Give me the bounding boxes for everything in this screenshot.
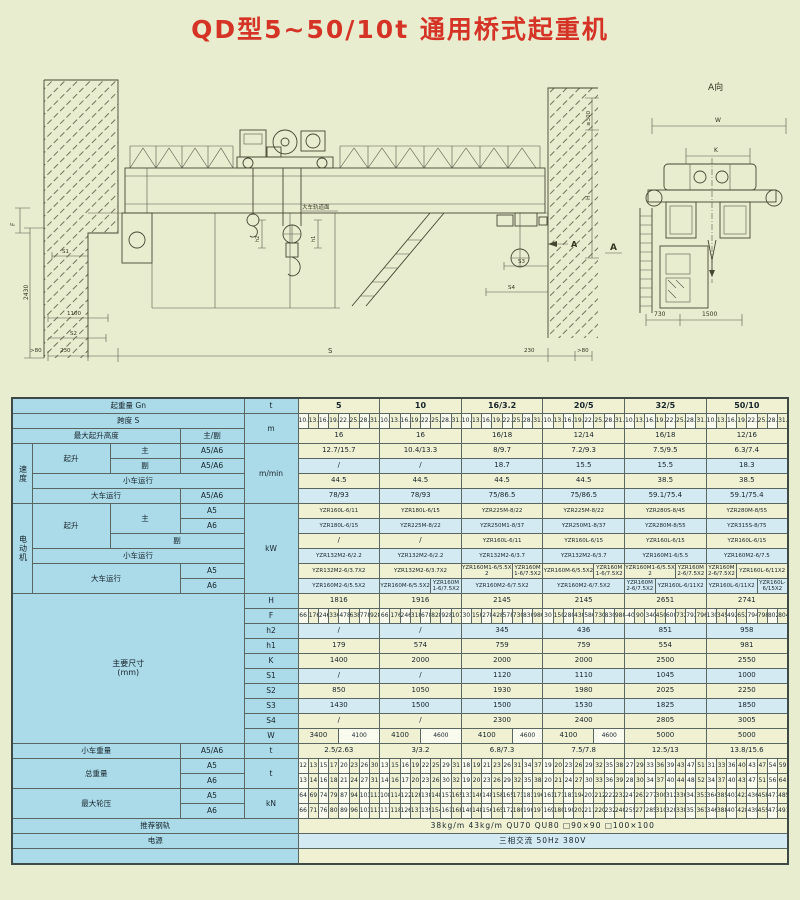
table-cell: /: [298, 624, 380, 639]
side-girders: [646, 190, 782, 238]
table-cell: 220: [594, 804, 604, 819]
table-cell: 10.5: [380, 414, 390, 429]
table-cell: 638: [349, 609, 359, 624]
table-cell: 5000: [706, 729, 788, 744]
dim-s3: S3: [518, 259, 525, 265]
table-cell: 928: [441, 609, 451, 624]
table-cell: 32: [594, 759, 604, 774]
table-cell: 128: [410, 789, 420, 804]
table-cell: 492: [727, 609, 737, 624]
table-cell: /: [380, 459, 462, 474]
table-cell: 180: [553, 804, 563, 819]
table-cell: 43: [737, 774, 747, 789]
dim-h: H: [585, 195, 592, 200]
table-cell: 22.5: [747, 414, 757, 429]
table-cell: H: [244, 594, 298, 609]
table-cell: YZR132M2-6/2.2: [298, 549, 380, 564]
table-cell: 16/18: [461, 429, 543, 444]
table-cell: 25.5: [431, 414, 441, 429]
table-cell: 31.5: [451, 414, 461, 429]
table-cell: 158: [492, 789, 502, 804]
table-cell: 2025: [625, 684, 707, 699]
table-cell: 31.5: [533, 414, 543, 429]
table-cell: 大车运行: [32, 564, 180, 594]
section-arrow-label: A: [571, 240, 578, 249]
table-cell: 211: [584, 804, 594, 819]
table-cell: 1400: [298, 654, 380, 669]
table-cell: 19.5: [574, 414, 584, 429]
table-cell: 小车运行: [32, 549, 244, 564]
table-cell: 12.5/13: [625, 744, 707, 759]
table-cell: 958: [706, 624, 788, 639]
table-cell: 47: [747, 774, 757, 789]
table-cell: 1980: [543, 684, 625, 699]
table-cell: 22: [420, 759, 430, 774]
table-cell: 485: [778, 789, 788, 804]
table-cell: 312: [665, 789, 675, 804]
table-cell: A6: [180, 519, 244, 534]
table-cell: 830: [604, 609, 614, 624]
table-cell: 19: [410, 759, 420, 774]
table-cell: 36: [727, 759, 737, 774]
table-cell: A6: [180, 579, 244, 594]
table-cell: 168: [451, 804, 461, 819]
spec-table: 起重量 Gnt51016/3.220/532/550/10跨度 Sm10.513…: [11, 397, 789, 865]
table-cell: 跨度 S: [12, 414, 244, 429]
section-label: A: [610, 243, 617, 253]
table-cell: 190: [533, 789, 543, 804]
table-cell: 154: [431, 804, 441, 819]
main-hook: [283, 168, 301, 276]
table-cell: 56: [767, 774, 777, 789]
table-cell: 732: [676, 609, 686, 624]
table-cell: 三相交流 50Hz 380V: [298, 834, 788, 849]
table-cell: 19.5: [655, 414, 665, 429]
table-cell: 310: [655, 804, 665, 819]
table-cell: 176: [308, 609, 318, 624]
table-cell: YZR160M-6/5.5X2: [543, 564, 594, 579]
table-cell: 1930: [461, 684, 543, 699]
table-cell: 1000: [706, 669, 788, 684]
table-cell: 2145: [461, 594, 543, 609]
table-cell: 16.5: [727, 414, 737, 429]
table-cell: 20: [543, 774, 553, 789]
table-cell: YZR132M2-6/3.7X2: [380, 564, 462, 579]
table-cell: YZR160M2-6/7.5X2: [706, 564, 737, 579]
side-view-title: A向: [708, 81, 723, 93]
table-cell: A5/A6: [180, 489, 244, 504]
table-cell: 75/86.5: [461, 489, 543, 504]
table-cell: 80: [329, 804, 339, 819]
table-cell: YZR160L-6/11X2: [737, 564, 788, 579]
table-cell: 407: [727, 804, 737, 819]
table-cell: 15.5: [543, 459, 625, 474]
table-cell: 345: [461, 624, 543, 639]
table-cell: 15: [390, 759, 400, 774]
table-cell: 推荐钢轨: [12, 819, 298, 834]
table-cell: 35: [522, 774, 532, 789]
dim-230-left: 230: [60, 348, 71, 354]
table-cell: 71: [308, 804, 318, 819]
table-cell: 4100: [461, 729, 512, 744]
table-cell: 4600: [512, 729, 543, 744]
table-cell: 速度: [12, 444, 32, 504]
table-cell: 13.8/15.6: [706, 744, 788, 759]
table-cell: 94: [349, 789, 359, 804]
table-cell: 796: [696, 609, 706, 624]
side-dimensions: W K 730 1500 A: [605, 117, 786, 326]
table-cell: /: [380, 714, 462, 729]
table-cell: 39: [665, 759, 675, 774]
table-cell: 19.5: [737, 414, 747, 429]
table-cell: 300: [655, 789, 665, 804]
table-cell: YZR160L-6/11X2: [655, 579, 706, 594]
table-cell: 13.5: [471, 414, 481, 429]
table-cell: 103: [359, 789, 369, 804]
table-cell: YZR160L-6/11X2: [706, 579, 757, 594]
table-cell: F: [244, 609, 298, 624]
dim-h2: h2: [255, 236, 261, 242]
table-cell: 28.5: [522, 414, 532, 429]
table-cell: 114: [390, 789, 400, 804]
table-cell: 19.5: [329, 414, 339, 429]
dim-w: W: [715, 117, 721, 124]
table-cell: YZR160M2-6/7.5X2: [625, 579, 656, 594]
table-cell: YZR160M2-6/7.5: [706, 549, 788, 564]
table-cell: 74: [318, 789, 328, 804]
table-cell: kN: [244, 789, 298, 819]
table-cell: 29: [441, 759, 451, 774]
table-cell: 44.5: [543, 474, 625, 489]
table-cell: 27: [359, 774, 369, 789]
table-cell: S3: [244, 699, 298, 714]
table-cell: YZR160M-6/5.5X2: [380, 579, 431, 594]
table-cell: 37: [716, 774, 726, 789]
table-cell: 1500: [380, 699, 462, 714]
table-cell: 173: [512, 789, 522, 804]
table-cell: 10.5: [461, 414, 471, 429]
table-cell: 78/93: [298, 489, 380, 504]
table-cell: 345: [716, 609, 726, 624]
table-cell: 165: [451, 789, 461, 804]
table-cell: 59.1/75.4: [625, 489, 707, 504]
table-cell: 439: [747, 804, 757, 819]
table-cell: 778: [359, 609, 369, 624]
table-cell: 176: [390, 609, 400, 624]
table-cell: YZR160M1-6/5.5: [625, 549, 707, 564]
table-cell: 364: [706, 789, 716, 804]
table-cell: 64: [298, 789, 308, 804]
table-cell: 2000: [543, 654, 625, 669]
table-cell: A5: [180, 564, 244, 579]
table-cell: 156: [482, 804, 492, 819]
dim-1100: 1100: [67, 311, 81, 317]
table-cell: YZR132M2-6/3.7X2: [298, 564, 380, 579]
table-cell: 980: [533, 609, 543, 624]
table-cell: 130: [706, 609, 716, 624]
dim-span-label: S: [328, 347, 333, 355]
table-cell: 183: [563, 789, 573, 804]
table-cell: 338: [676, 804, 686, 819]
table-cell: 最大轮压: [12, 789, 180, 819]
table-cell: 16.5: [645, 414, 655, 429]
table-cell: 10.5: [706, 414, 716, 429]
table-cell: YZR160M1-6/7.5X2: [431, 579, 462, 594]
table-cell: 554: [625, 639, 707, 654]
table-cell: 38: [533, 774, 543, 789]
table-cell: /: [380, 669, 462, 684]
table-cell: 1825: [625, 699, 707, 714]
table-cell: A5/A6: [180, 744, 244, 759]
table-cell: 15: [318, 759, 328, 774]
table-cell: 388: [716, 804, 726, 819]
table-cell: 20: [339, 759, 349, 774]
table-cell: 31: [369, 774, 379, 789]
table-cell: t: [244, 759, 298, 789]
table-cell: 161: [441, 804, 451, 819]
table-cell: 113: [369, 804, 379, 819]
table-cell: 22.5: [584, 414, 594, 429]
table-cell: 22.5: [420, 414, 430, 429]
table-cell: /: [298, 459, 380, 474]
table-cell: 43: [676, 759, 686, 774]
table-cell: 33: [716, 759, 726, 774]
table-cell: 126: [400, 804, 410, 819]
table-cell: 20: [553, 759, 563, 774]
table-cell: 30: [635, 774, 645, 789]
table-cell: [298, 849, 788, 865]
table-cell: 44.5: [461, 474, 543, 489]
dim-gt80-left: >80: [30, 348, 42, 354]
table-cell: 22.5: [339, 414, 349, 429]
table-cell: 38: [614, 759, 624, 774]
table-cell: 25.5: [676, 414, 686, 429]
table-cell: 794: [747, 609, 757, 624]
table-cell: 578: [502, 609, 512, 624]
table-cell: 16: [380, 429, 462, 444]
table-cell: 13.5: [553, 414, 563, 429]
table-cell: 26: [431, 774, 441, 789]
table-cell: A5/A6: [180, 459, 244, 474]
table-cell: 246: [400, 609, 410, 624]
table-cell: 140: [461, 804, 471, 819]
table-cell: 电源: [12, 834, 298, 849]
table-cell: 26: [492, 774, 502, 789]
table-cell: 183: [522, 789, 532, 804]
table-cell: 804: [778, 609, 788, 624]
table-cell: 大车运行: [32, 489, 180, 504]
table-cell: 161: [543, 789, 553, 804]
dim-2430: 2430: [23, 285, 30, 300]
table-cell: 主: [110, 444, 180, 459]
table-cell: kW: [244, 504, 298, 594]
table-cell: 150: [471, 609, 481, 624]
table-cell: 455: [757, 804, 767, 819]
table-cell: 23: [563, 759, 573, 774]
table-cell: 320: [665, 804, 675, 819]
table-cell: 19.5: [492, 414, 502, 429]
table-cell: A6: [180, 774, 244, 789]
table-cell: 24: [563, 774, 573, 789]
table-cell: t: [244, 398, 298, 414]
table-cell: 29: [635, 759, 645, 774]
table-cell: 471: [767, 789, 777, 804]
table-cell: 51: [757, 774, 767, 789]
table-cell: 15.5: [625, 459, 707, 474]
table-cell: 16/3.2: [461, 398, 543, 414]
side-view-drawing: A向 W K 730 1500 A: [605, 81, 786, 326]
table-cell: 4600: [594, 729, 625, 744]
table-cell: 148: [431, 789, 441, 804]
table-cell: 5: [298, 398, 380, 414]
table-cell: YZR160M1-6/7.5X2: [512, 564, 543, 579]
table-cell: 240: [614, 804, 624, 819]
table-cell: 148: [471, 804, 481, 819]
table-cell: 30: [584, 774, 594, 789]
table-cell: 103: [359, 804, 369, 819]
table-cell: 50/10: [706, 398, 788, 414]
dim-ge300: ≥300: [586, 110, 592, 126]
table-cell: 33: [645, 759, 655, 774]
table-cell: YZR160M2-6/7.5X2: [676, 564, 707, 579]
table-cell: 2741: [706, 594, 788, 609]
table-cell: 30: [441, 774, 451, 789]
aux-hook: [247, 168, 259, 237]
table-cell: 起升: [32, 504, 110, 549]
table-cell: A5: [180, 504, 244, 519]
table-cell: 730: [512, 609, 522, 624]
dim-s1: S1: [62, 249, 69, 255]
table-cell: 5000: [625, 729, 707, 744]
side-cab: [660, 246, 708, 308]
table-cell: 13: [380, 759, 390, 774]
table-cell: 138: [420, 789, 430, 804]
table-cell: 37: [655, 774, 665, 789]
side-hook-centerline: [708, 158, 716, 283]
table-cell: 21: [553, 774, 563, 789]
table-cell: 351: [686, 804, 696, 819]
table-cell: 24: [349, 774, 359, 789]
table-cell: 30: [461, 609, 471, 624]
table-cell: W: [244, 729, 298, 744]
table-cell: YZR225M-8/22: [543, 504, 625, 519]
dim-f: F: [10, 222, 17, 226]
table-cell: 255: [625, 804, 635, 819]
table-cell: 2651: [625, 594, 707, 609]
table-cell: 26: [359, 759, 369, 774]
table-cell: 31: [706, 759, 716, 774]
table-cell: 52: [696, 774, 706, 789]
table-cell: 75/86.5: [543, 489, 625, 504]
table-cell: 66: [298, 804, 308, 819]
rail-surface-label: 大车轨道面: [302, 203, 330, 211]
table-cell: YZR160L-6/15: [706, 534, 788, 549]
table-cell: 起升: [32, 444, 110, 474]
table-cell: 38.5: [625, 474, 707, 489]
table-cell: 318: [410, 609, 420, 624]
table-cell: 12: [298, 759, 308, 774]
table-cell: 828: [431, 609, 441, 624]
table-cell: YZR160L-6/15X2: [757, 579, 788, 594]
table-cell: 190: [522, 804, 532, 819]
table-cell: S4: [244, 714, 298, 729]
table-cell: 140: [471, 789, 481, 804]
table-cell: 980: [614, 609, 624, 624]
table-cell: 202: [574, 804, 584, 819]
table-cell: 851: [625, 624, 707, 639]
table-cell: 436: [747, 789, 757, 804]
side-ladder: [640, 208, 652, 313]
table-cell: 36: [655, 759, 665, 774]
table-cell: YZR160M1-6/7.5X2: [594, 564, 625, 579]
table-cell: YZR225M-8/22: [461, 504, 543, 519]
table-cell: 26: [574, 759, 584, 774]
table-cell: 19: [471, 759, 481, 774]
table-cell: /: [298, 669, 380, 684]
table-cell: 主: [110, 504, 180, 534]
table-cell: 28.5: [359, 414, 369, 429]
table-cell: 90: [635, 609, 645, 624]
table-cell: YZR280M-8/55: [625, 519, 707, 534]
table-cell: YZR160L-6/15: [543, 534, 625, 549]
table-cell: 19: [461, 774, 471, 789]
table-cell: 246: [318, 609, 328, 624]
table-cell: A6: [180, 804, 244, 819]
table-cell: 122: [400, 789, 410, 804]
table-cell: 850: [298, 684, 380, 699]
dim-s2: S2: [70, 331, 77, 337]
table-cell: 28.5: [686, 414, 696, 429]
table-cell: 139: [420, 804, 430, 819]
table-cell: YZR160M1-6/5.5X2: [625, 564, 676, 579]
table-cell: [12, 849, 298, 865]
table-cell: 78/93: [380, 489, 462, 504]
table-cell: m: [244, 414, 298, 444]
table-cell: YZR250M1-8/37: [461, 519, 543, 534]
table-cell: h1: [244, 639, 298, 654]
table-cell: YZR180L-6/15: [298, 519, 380, 534]
table-cell: 34: [522, 759, 532, 774]
table-cell: K: [244, 654, 298, 669]
table-cell: 17: [329, 759, 339, 774]
table-cell: 1916: [380, 594, 462, 609]
table-cell: 起重量 Gn: [12, 398, 244, 414]
table-cell: 96: [349, 804, 359, 819]
table-cell: 798: [757, 609, 767, 624]
table-cell: 12/16: [706, 429, 788, 444]
table-cell: 35: [604, 759, 614, 774]
table-cell: 23: [349, 759, 359, 774]
table-cell: 652: [737, 609, 747, 624]
table-cell: 总重量: [12, 759, 180, 789]
table-cell: 22.5: [502, 414, 512, 429]
spec-table-body: 起重量 Gnt51016/3.220/532/550/10跨度 Sm10.513…: [12, 398, 788, 864]
table-cell: 16/18: [625, 429, 707, 444]
table-cell: 主要尺寸 (mm): [12, 594, 244, 744]
table-cell: 165: [492, 804, 502, 819]
table-cell: 40: [727, 774, 737, 789]
table-cell: 28.5: [767, 414, 777, 429]
table-cell: 928: [369, 609, 379, 624]
table-cell: 278: [482, 609, 492, 624]
table-cell: 422: [737, 789, 747, 804]
table-cell: 19: [543, 759, 553, 774]
table-cell: 21: [482, 759, 492, 774]
table-cell: 385: [716, 789, 726, 804]
table-cell: 730: [594, 609, 604, 624]
table-cell: 31: [451, 759, 461, 774]
table-cell: 171: [553, 789, 563, 804]
